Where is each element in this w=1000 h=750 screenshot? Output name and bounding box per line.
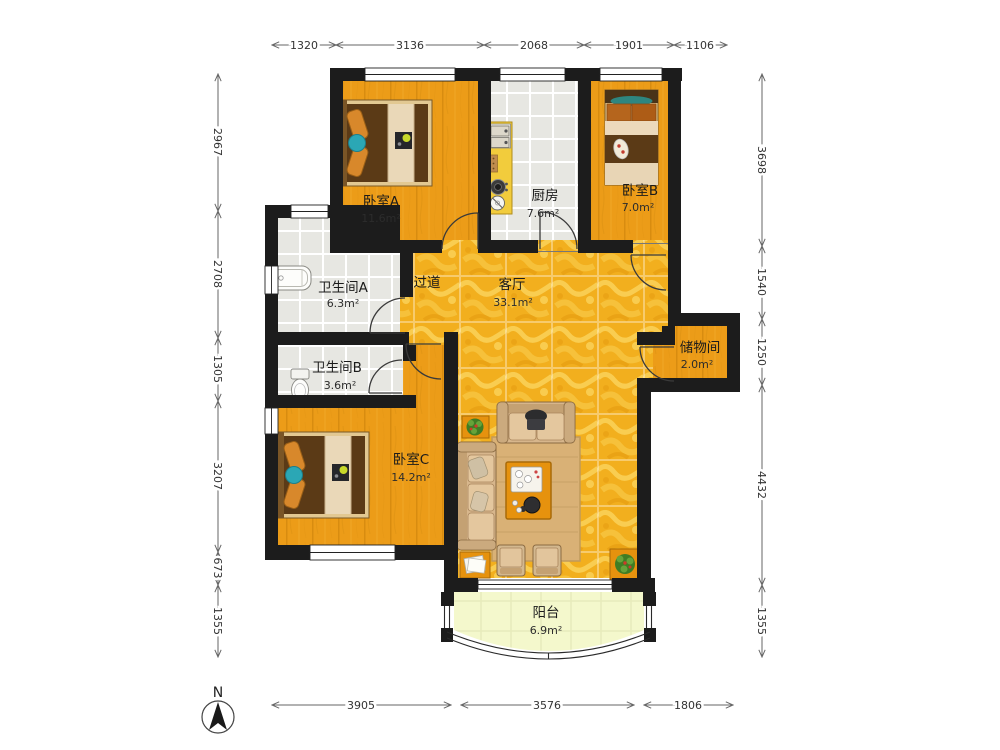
kettle-icon: [491, 196, 505, 210]
dim-left-2: 1305: [211, 355, 224, 383]
bathroom-a-area: 6.3m²: [327, 297, 360, 310]
dim-bottom-0: 3905: [347, 699, 375, 712]
window-bedroom-c-left: [265, 408, 278, 434]
dim-right-3: 4432: [755, 471, 768, 499]
bed-icon-bedroom-b: [605, 90, 658, 185]
bedroom-a-label: 卧室A: [363, 193, 400, 210]
bathroom-a-label: 卫生间A: [318, 280, 368, 296]
balcony-area: 6.9m²: [530, 624, 563, 637]
dimension-top: 1320 3136 2068 1901 1106: [272, 39, 727, 52]
armchair-1: [497, 545, 525, 576]
window-bedroom-b: [600, 68, 662, 81]
storage-door-threshold: [662, 345, 675, 378]
dimension-right: 3698 1540 1250 4432 1355: [755, 74, 768, 657]
sofa-top: [497, 402, 575, 443]
bedroom-b-label: 卧室B: [622, 182, 658, 199]
armchair-2: [533, 545, 561, 576]
entry-door-threshold: [633, 240, 668, 253]
window-bathroom-a-top: [291, 205, 328, 218]
north-arrow-icon: [209, 702, 227, 730]
dim-right-0: 3698: [755, 146, 768, 174]
dim-left-0: 2967: [211, 128, 224, 156]
dim-left-5: 1355: [211, 607, 224, 635]
dim-top-2: 2068: [520, 39, 548, 52]
plant-corner: [610, 549, 640, 579]
compass: N: [202, 685, 234, 733]
balcony-label: 阳台: [533, 605, 560, 621]
bedroom-a-area: 11.6m²: [361, 212, 401, 225]
bed-icon-bedroom-c: [277, 432, 369, 518]
living-room-area: 33.1m²: [493, 296, 533, 309]
bedroom-b-area: 7.0m²: [622, 201, 655, 214]
dim-right-4: 1355: [755, 607, 768, 635]
dim-left-1: 2708: [211, 260, 224, 288]
bedroom-c-area: 14.2m²: [391, 471, 431, 484]
sofa-left: [457, 442, 496, 550]
window-bedroom-c-bottom: [310, 545, 395, 560]
plant-table-top: [462, 416, 489, 438]
bedroom-a-door-threshold: [442, 240, 478, 253]
storage-area: 2.0m²: [681, 358, 714, 371]
dimension-left: 2967 2708 1305 3207 673 1355: [211, 74, 224, 657]
dim-bottom-1: 3576: [533, 699, 561, 712]
dim-left-4: 673: [211, 558, 224, 579]
window-bedroom-a: [365, 68, 455, 81]
floor-plan: 卧室A 11.6m² 厨房 7.6m² 卧室B 7.0m² 卫生间A 6.3m²…: [0, 0, 1000, 750]
window-bathroom-a-left: [265, 266, 278, 294]
hallway-label: 过道: [414, 275, 441, 291]
dim-top-4: 1106: [686, 39, 714, 52]
dim-right-1: 1540: [755, 268, 768, 296]
bed-icon-bedroom-a: [340, 100, 432, 186]
kitchen-area: 7.6m²: [527, 207, 560, 220]
balcony-floor: [454, 592, 644, 651]
bedroom-c-door-threshold: [409, 332, 444, 345]
dim-top-3: 1901: [615, 39, 643, 52]
dim-top-1: 3136: [396, 39, 424, 52]
storage-label: 储物间: [680, 340, 721, 356]
bathroom-a-door-threshold: [400, 297, 413, 332]
bathroom-b-label: 卫生间B: [312, 360, 362, 376]
compass-north-label: N: [213, 685, 223, 701]
bathroom-b-area: 3.6m²: [324, 379, 357, 392]
dim-right-2: 1250: [755, 338, 768, 366]
window-kitchen: [500, 68, 565, 81]
coffee-table: [506, 462, 551, 519]
dim-top-0: 1320: [290, 39, 318, 52]
balcony-slider: [478, 580, 612, 589]
living-room-label: 客厅: [499, 276, 526, 293]
sink-icon: [490, 124, 511, 148]
bedroom-c-label: 卧室C: [393, 451, 429, 468]
dimension-bottom: 3905 3576 1806: [272, 699, 733, 712]
dim-bottom-2: 1806: [674, 699, 702, 712]
kitchen-counter: [488, 122, 512, 214]
side-table-books: [460, 552, 490, 578]
dim-left-3: 3207: [211, 462, 224, 490]
kitchen-label: 厨房: [532, 188, 559, 204]
